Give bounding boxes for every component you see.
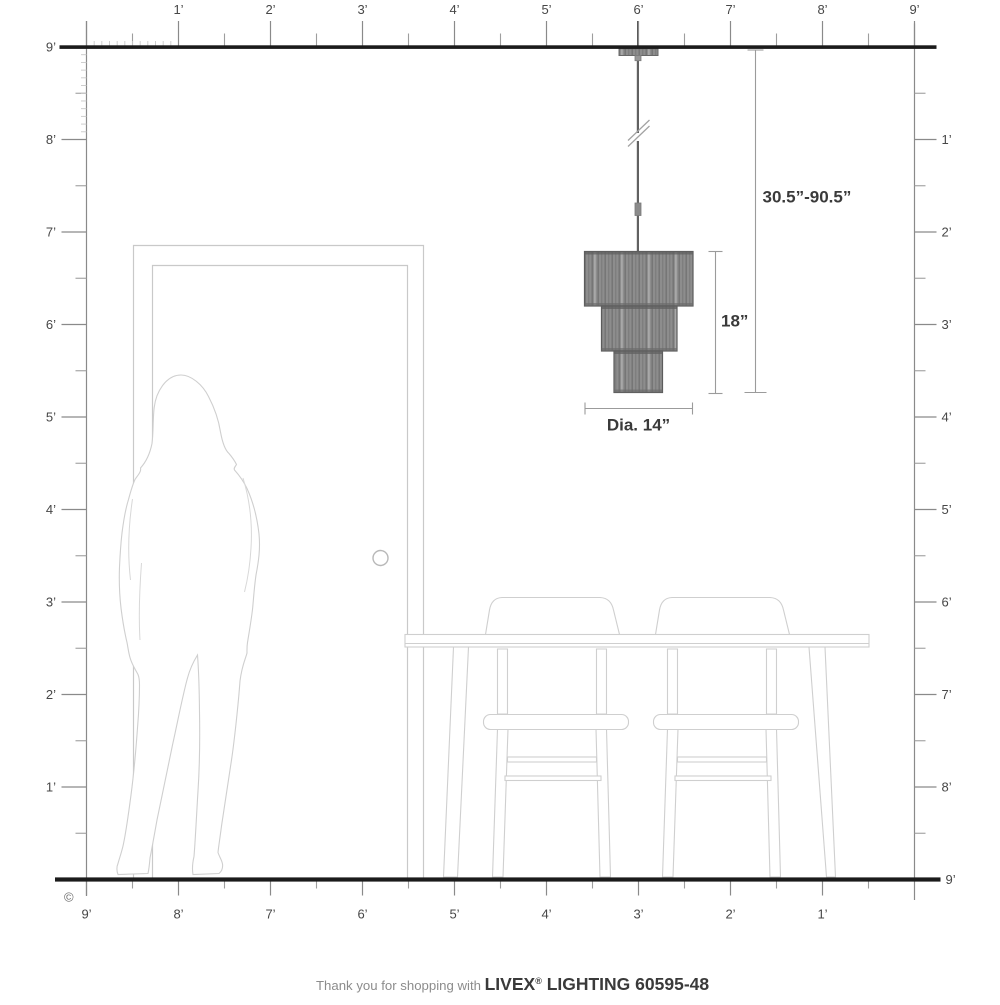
svg-text:2’: 2’ (265, 2, 275, 17)
svg-text:8’: 8’ (173, 907, 183, 922)
svg-text:4’: 4’ (449, 2, 459, 17)
svg-text:8’: 8’ (942, 780, 952, 795)
svg-text:©: © (64, 890, 74, 905)
svg-text:7’: 7’ (265, 907, 275, 922)
svg-text:3’: 3’ (46, 595, 56, 610)
svg-text:9’: 9’ (946, 872, 956, 887)
svg-text:5’: 5’ (46, 410, 56, 425)
svg-text:2’: 2’ (942, 225, 952, 240)
svg-text:7’: 7’ (46, 225, 56, 240)
svg-text:5’: 5’ (449, 907, 459, 922)
svg-text:1’: 1’ (173, 2, 183, 17)
svg-text:1’: 1’ (942, 132, 952, 147)
svg-text:3’: 3’ (633, 907, 643, 922)
svg-text:9’: 9’ (909, 2, 919, 17)
svg-text:1’: 1’ (46, 780, 56, 795)
svg-text:7’: 7’ (725, 2, 735, 17)
svg-text:8’: 8’ (817, 2, 827, 17)
svg-text:3’: 3’ (942, 317, 952, 332)
svg-text:9’: 9’ (81, 907, 91, 922)
svg-text:5’: 5’ (942, 502, 952, 517)
svg-text:6’: 6’ (46, 317, 56, 332)
svg-text:Dia. 14”: Dia. 14” (607, 416, 670, 435)
svg-text:1’: 1’ (817, 907, 827, 922)
svg-text:4’: 4’ (942, 410, 952, 425)
svg-text:3’: 3’ (357, 2, 367, 17)
svg-text:6’: 6’ (357, 907, 367, 922)
svg-text:7’: 7’ (942, 687, 952, 702)
svg-text:8’: 8’ (46, 132, 56, 147)
svg-text:6’: 6’ (633, 2, 643, 17)
svg-text:9’: 9’ (46, 40, 56, 55)
svg-text:18”: 18” (721, 312, 748, 331)
svg-text:6’: 6’ (942, 595, 952, 610)
svg-text:2’: 2’ (725, 907, 735, 922)
svg-text:30.5”-90.5”: 30.5”-90.5” (763, 188, 852, 207)
svg-text:4’: 4’ (541, 907, 551, 922)
svg-text:5’: 5’ (541, 2, 551, 17)
svg-text:4’: 4’ (46, 502, 56, 517)
svg-text:2’: 2’ (46, 687, 56, 702)
